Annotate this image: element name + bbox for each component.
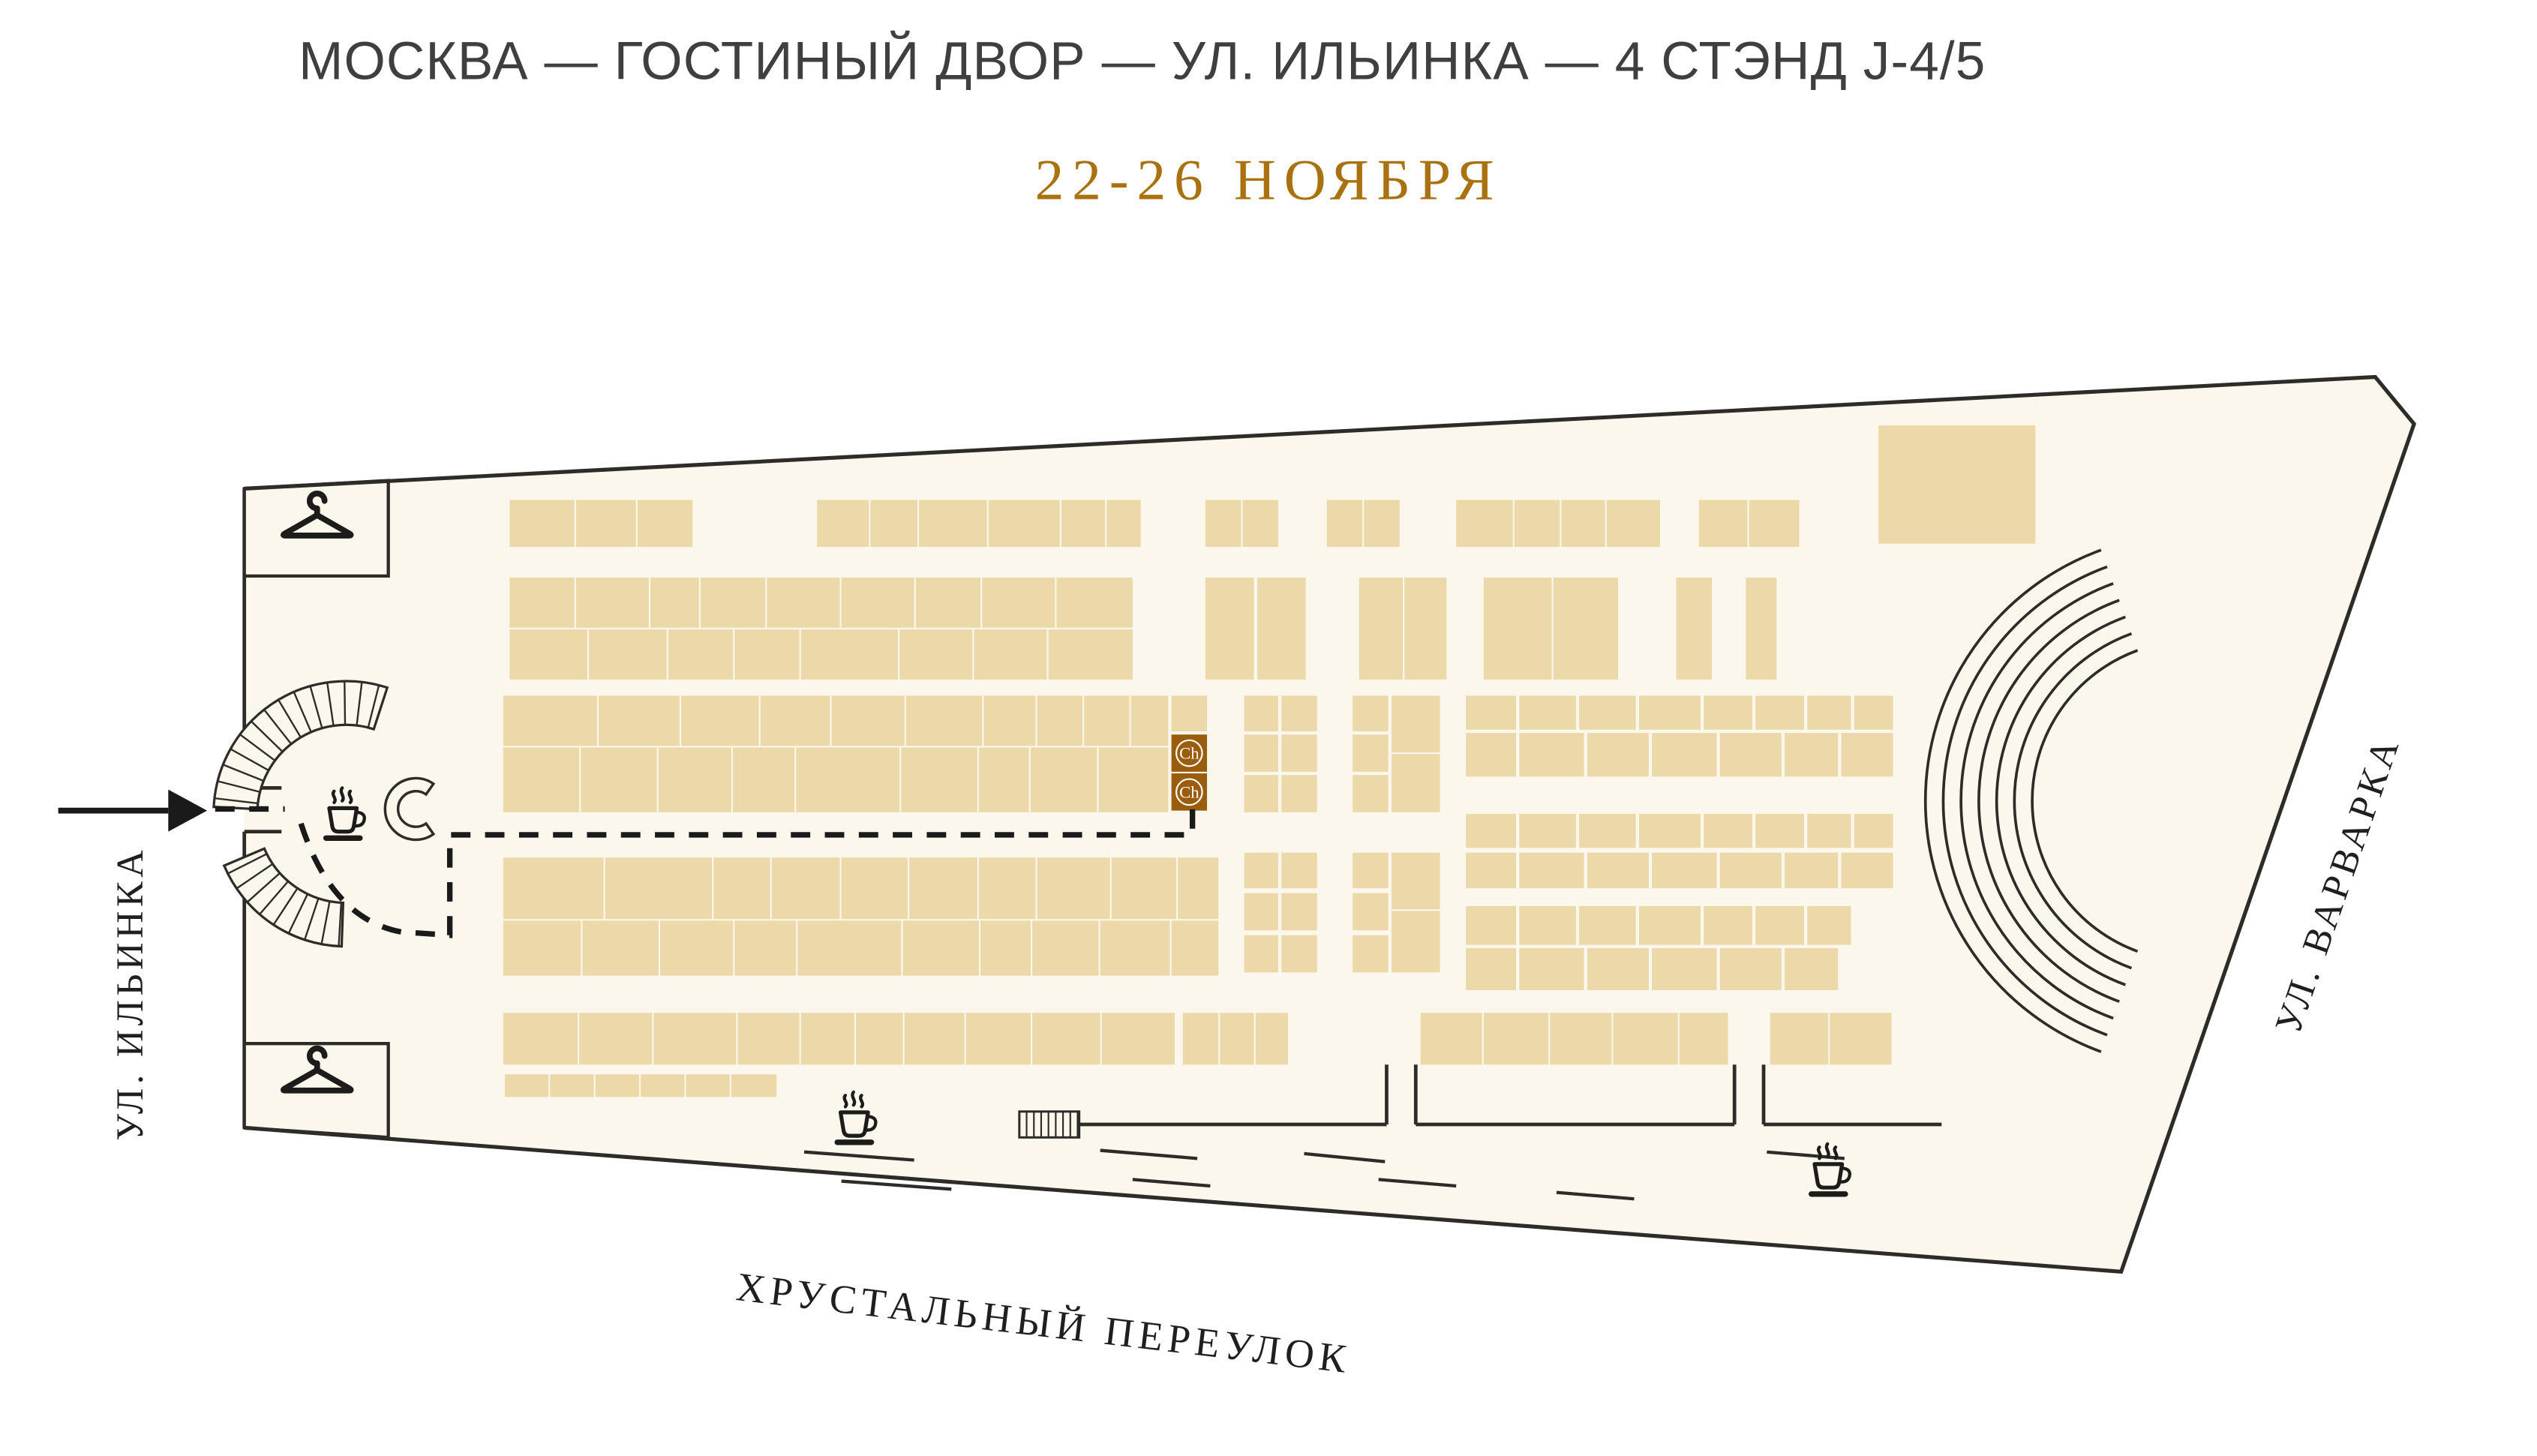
stand [1032, 1013, 1100, 1064]
stand [1281, 893, 1317, 931]
stand [734, 629, 799, 680]
floor-plan-stage: МОСКВА — ГОСТИНЫЙ ДВОР — УЛ. ИЛЬИНКА — 4… [0, 0, 2537, 1456]
stand-group-band_b_right [1205, 578, 1776, 680]
stand [638, 500, 692, 547]
stand [979, 857, 1035, 919]
stand [1466, 948, 1516, 990]
stand [817, 500, 869, 547]
stand [797, 920, 901, 975]
stand [801, 1013, 854, 1064]
stand [734, 920, 796, 975]
stand [1244, 734, 1278, 772]
stand [576, 500, 636, 547]
stand-group-right_block_b2_r2 [1466, 853, 1893, 888]
stand [1519, 733, 1584, 776]
stand [701, 578, 765, 628]
stand [1579, 814, 1635, 848]
stand [1466, 814, 1516, 848]
stand [801, 629, 898, 680]
stand [1106, 500, 1140, 547]
stand [668, 629, 733, 680]
stand [1854, 695, 1893, 729]
stand [1404, 578, 1446, 680]
stand [1056, 578, 1132, 628]
stand [582, 920, 658, 975]
stand [1392, 695, 1440, 752]
stand-group-band_c1_row1 [503, 695, 1207, 746]
stand [1807, 695, 1851, 729]
stand [980, 920, 1031, 975]
stand-group-band_b_row1 [509, 578, 1132, 628]
stand [1587, 733, 1649, 776]
stand [1770, 1013, 1829, 1064]
stand [1327, 500, 1362, 547]
stand [509, 629, 587, 680]
stand [1392, 853, 1440, 909]
stand [1699, 500, 1748, 547]
stand [576, 578, 649, 628]
stand [1550, 1013, 1611, 1064]
stand [1037, 857, 1110, 919]
stand [1244, 893, 1278, 931]
stand [1281, 734, 1317, 772]
stand [1704, 695, 1752, 729]
stand [966, 1013, 1031, 1064]
stand [1421, 1013, 1482, 1064]
stand [509, 578, 574, 628]
stand [1785, 853, 1838, 888]
stand [1220, 1013, 1253, 1064]
stand [983, 695, 1035, 746]
stand [1613, 1013, 1677, 1064]
stand [1049, 629, 1133, 680]
stand [1102, 1013, 1175, 1064]
stand [1842, 853, 1893, 888]
stand [1519, 814, 1575, 848]
stand [1677, 578, 1712, 680]
stand [1720, 853, 1782, 888]
stand [974, 629, 1046, 680]
stand [909, 857, 977, 919]
stand [1032, 920, 1098, 975]
stand [1353, 853, 1388, 888]
stand [1519, 853, 1584, 888]
stand [550, 1074, 593, 1097]
stand [1392, 754, 1440, 812]
stand [1579, 695, 1635, 729]
stand [1720, 733, 1782, 776]
stand [579, 1013, 652, 1064]
stand [503, 747, 579, 812]
stand [1099, 747, 1169, 812]
stand-group-band_c1_row2 [503, 747, 1168, 812]
stand [1353, 734, 1388, 772]
stand [1100, 920, 1170, 975]
stand [1561, 500, 1605, 547]
stand [1607, 500, 1660, 547]
stand [503, 920, 581, 975]
stand [1131, 695, 1169, 746]
stand-group-band_c3_row2 [505, 1074, 776, 1097]
target-stand: Ch [1172, 773, 1207, 811]
stand [1466, 906, 1516, 945]
stand-group-band_c2_row2 [503, 920, 1218, 975]
stand [503, 857, 604, 919]
stand [1359, 578, 1403, 680]
stand [733, 747, 794, 812]
stand-group-right_block_b3_r1 [1466, 906, 1851, 945]
entrance-arrow-head [168, 790, 207, 832]
stand [1755, 695, 1804, 729]
stand [1554, 578, 1618, 680]
stand [1484, 1013, 1548, 1064]
stand [1830, 1013, 1891, 1064]
stand [1639, 814, 1701, 848]
stand [856, 1013, 903, 1064]
stand [1281, 935, 1317, 973]
stand [1244, 775, 1278, 812]
stand [1842, 733, 1893, 776]
stand [901, 747, 977, 812]
stand [1785, 733, 1838, 776]
stand [1466, 853, 1516, 888]
stand [1749, 500, 1800, 547]
stand [1519, 906, 1575, 945]
stairs-tread [344, 681, 345, 725]
stand [767, 578, 839, 628]
stand [1353, 935, 1388, 973]
stand [1257, 578, 1306, 680]
stand [581, 747, 656, 812]
stand [1878, 425, 2035, 543]
stand [1652, 733, 1716, 776]
stand [641, 1074, 684, 1097]
stand [1587, 948, 1649, 990]
stand [660, 920, 733, 975]
stand [1178, 857, 1218, 919]
stand [599, 695, 680, 746]
stand-group-band_c3_row1 [503, 1013, 1288, 1064]
stand [1807, 814, 1851, 848]
stand [1244, 853, 1278, 888]
stand [1579, 906, 1635, 945]
stand [509, 500, 574, 547]
stand [1205, 500, 1241, 547]
stand [1364, 500, 1399, 547]
stand [1242, 500, 1278, 547]
stand [686, 1074, 730, 1097]
stand [1244, 935, 1278, 973]
stand [650, 578, 699, 628]
target-stand-logo: Ch [1179, 744, 1199, 763]
stand [772, 857, 840, 919]
stand [1281, 695, 1317, 731]
stand [1112, 857, 1176, 919]
stand [1031, 747, 1097, 812]
stand [653, 1013, 736, 1064]
stand [605, 857, 712, 919]
street-label-khrustalny: ХРУСТАЛЬНЫЙ ПЕРЕУЛОК [734, 1264, 1353, 1382]
stand [1785, 948, 1838, 990]
stand [1172, 920, 1219, 975]
stand [903, 920, 979, 975]
stand [982, 578, 1055, 628]
stand [1281, 775, 1317, 812]
stand [1084, 695, 1129, 746]
stand-group-band_b_row2 [509, 629, 1132, 680]
stand [1519, 948, 1584, 990]
stand [1755, 814, 1804, 848]
stand [713, 857, 770, 919]
stand [1281, 853, 1317, 888]
stand [503, 1013, 578, 1064]
stand [1244, 695, 1278, 731]
stand [659, 747, 731, 812]
stand [1704, 814, 1752, 848]
stand [761, 695, 830, 746]
page: { "header": { "title": "МОСКВА — ГОСТИНЫ… [0, 0, 2537, 1455]
stand [503, 695, 597, 746]
stand-group-big_top_right [1878, 425, 2035, 543]
stand [905, 1013, 965, 1064]
stand [1519, 695, 1575, 729]
stand [1652, 853, 1716, 888]
street-label-ilyinka: УЛ. ИЛЬИНКА [109, 846, 151, 1141]
stand [1680, 1013, 1728, 1064]
stand [1183, 1013, 1218, 1064]
stand [842, 578, 914, 628]
stand [1392, 911, 1440, 972]
target-stand: Ch [1172, 734, 1207, 772]
stand [1256, 1013, 1288, 1064]
stand [505, 1074, 548, 1097]
stand [1484, 578, 1552, 680]
stand [1720, 948, 1782, 990]
stand [842, 857, 908, 919]
stand [796, 747, 899, 812]
stand [919, 500, 987, 547]
stand-group-right_block_b2_r1 [1466, 814, 1893, 848]
stand [899, 629, 972, 680]
target-stand-logo: Ch [1179, 782, 1199, 801]
stand [1755, 906, 1804, 945]
stand [1587, 853, 1649, 888]
stand-group-right_block_b1_r1 [1466, 695, 1893, 729]
stand [589, 629, 667, 680]
stand [1353, 695, 1388, 731]
stand [870, 500, 917, 547]
stand [738, 1013, 800, 1064]
stand [979, 747, 1029, 812]
stand [1652, 948, 1716, 990]
stand [1172, 695, 1207, 731]
stand [1515, 500, 1560, 547]
stand [1353, 775, 1388, 812]
stand-group-right_block_b1_r2 [1466, 733, 1893, 776]
stand [1061, 500, 1105, 547]
stand [1746, 578, 1776, 680]
stand [1466, 695, 1516, 729]
stand [989, 500, 1060, 547]
stand [1854, 814, 1893, 848]
stand [1466, 733, 1516, 776]
stand [1807, 906, 1851, 945]
stand [1639, 695, 1701, 729]
stand [906, 695, 982, 746]
stand [1353, 893, 1388, 931]
stand [596, 1074, 639, 1097]
stand-group-band_c3_right [1421, 1013, 1892, 1064]
stand [731, 1074, 776, 1097]
stand [832, 695, 905, 746]
stand [1037, 695, 1082, 746]
stand [1456, 500, 1512, 547]
stand [1704, 906, 1752, 945]
stand [916, 578, 980, 628]
stand [1639, 906, 1701, 945]
stand [1205, 578, 1254, 680]
venue-map: ChCh УЛ. ИЛЬИНКА УЛ. ВАРВАРКА ХРУСТАЛЬНЫ… [0, 0, 2537, 1456]
stand [681, 695, 759, 746]
